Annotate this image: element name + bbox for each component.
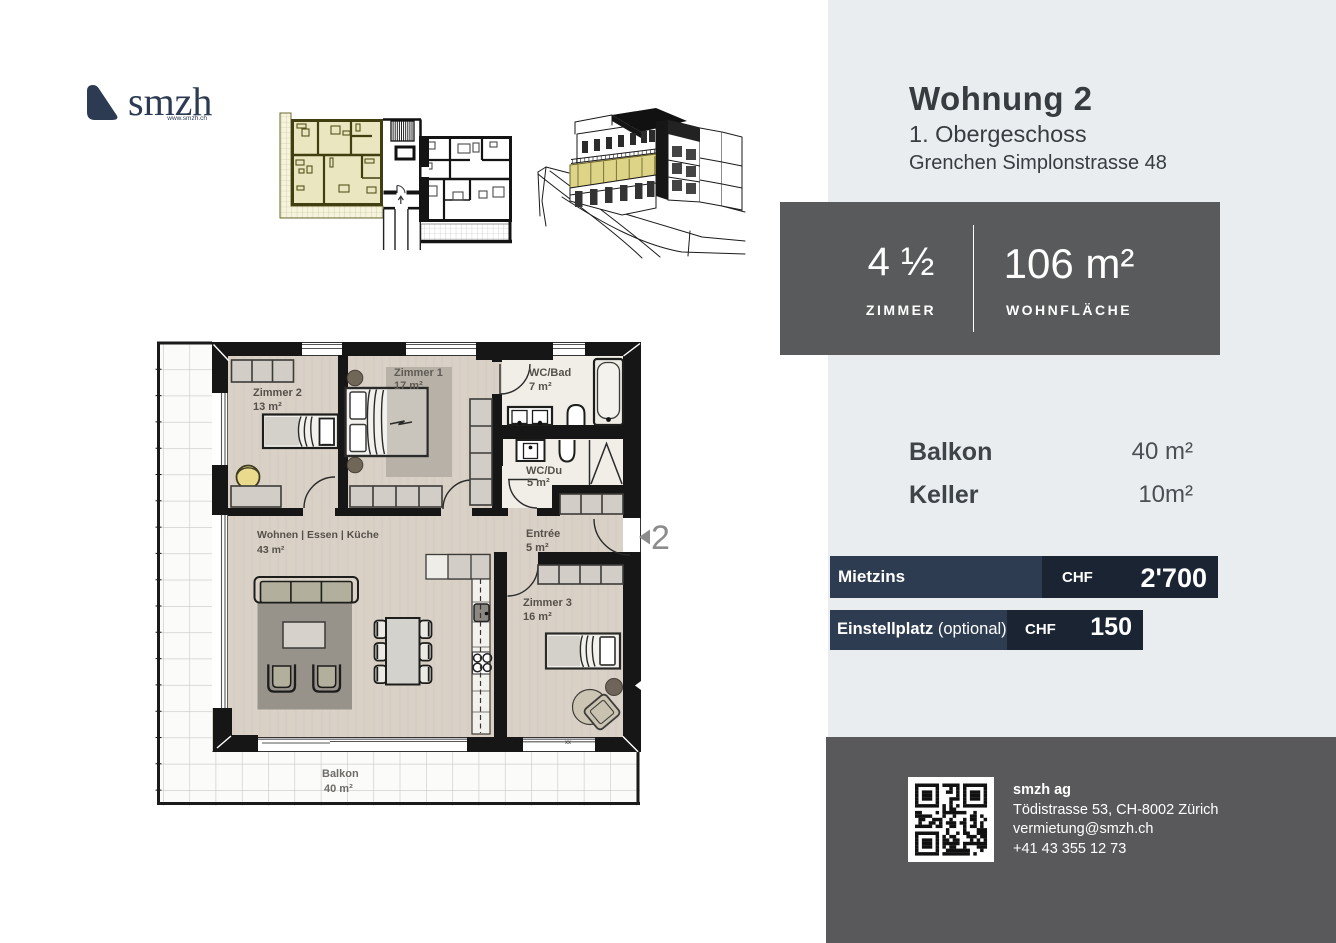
svg-text:5 m²: 5 m² xyxy=(527,477,550,489)
svg-text:13 m²: 13 m² xyxy=(253,401,282,413)
svg-text:WC/Du: WC/Du xyxy=(526,465,562,477)
svg-text:WC/Bad: WC/Bad xyxy=(529,367,571,379)
svg-text:5 m²: 5 m² xyxy=(526,542,549,554)
svg-text:Zimmer 1: Zimmer 1 xyxy=(394,367,443,379)
svg-text:17 m²: 17 m² xyxy=(394,380,423,392)
svg-text:Entrée: Entrée xyxy=(526,528,560,540)
svg-text:2: 2 xyxy=(651,519,670,557)
svg-text:43 m²: 43 m² xyxy=(257,544,285,556)
svg-text:7 m²: 7 m² xyxy=(529,381,552,393)
svg-text:xx: xx xyxy=(565,740,571,746)
svg-text:Wohnen | Essen | Küche: Wohnen | Essen | Küche xyxy=(257,529,379,541)
svg-text:Zimmer 3: Zimmer 3 xyxy=(523,597,572,609)
svg-text:40 m²: 40 m² xyxy=(324,783,353,795)
svg-text:Balkon: Balkon xyxy=(322,768,359,780)
svg-text:Zimmer 2: Zimmer 2 xyxy=(253,387,302,399)
svg-text:16 m²: 16 m² xyxy=(523,611,552,623)
